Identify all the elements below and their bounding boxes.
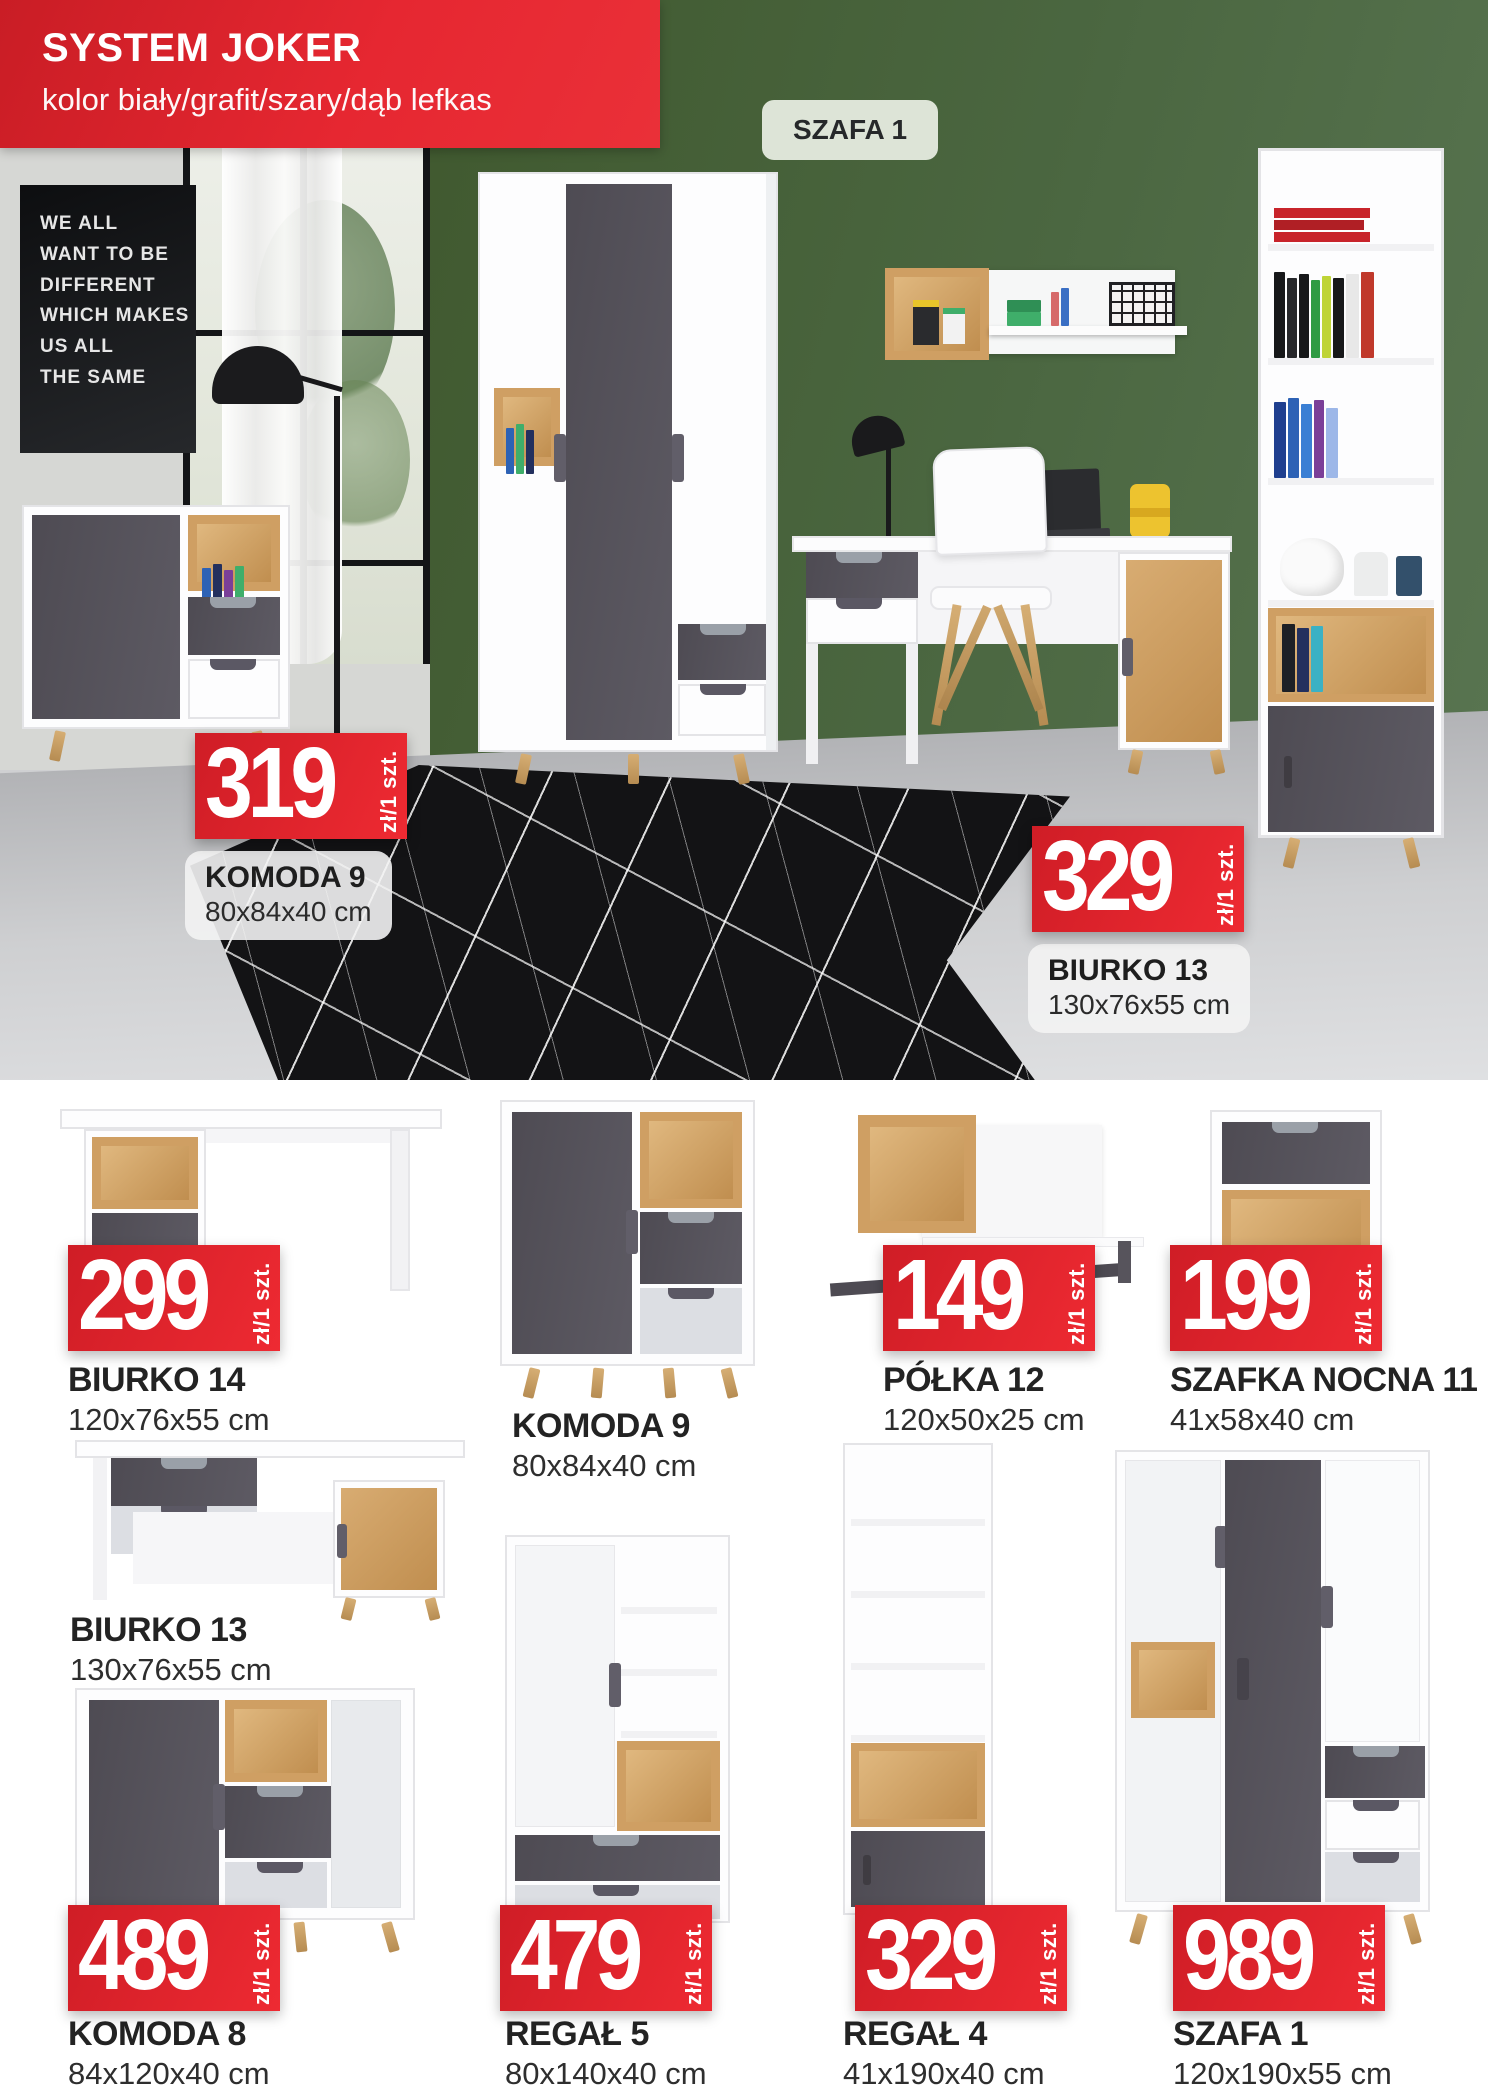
- book: [1061, 288, 1069, 326]
- series-subtitle: kolor biały/grafit/szary/dąb lefkas: [42, 82, 492, 118]
- door-handle: [337, 1524, 347, 1558]
- wood-leg: [293, 1922, 307, 1953]
- price-unit: zł/1 szt.: [681, 1911, 707, 2005]
- shelf-side-dark: [1118, 1241, 1131, 1283]
- price-badge-biurko-14: 299 zł/1 szt.: [68, 1245, 280, 1351]
- price-badge-szafa-1: 989 zł/1 szt.: [1173, 1905, 1385, 2011]
- shelf-plank: [1268, 358, 1434, 365]
- shelf-plank: [851, 1591, 985, 1598]
- product-label-komoda-9: KOMODA 9 80x84x40 cm: [512, 1408, 696, 1483]
- wood-leg: [721, 1367, 739, 1399]
- book: [1297, 628, 1309, 692]
- wood-leg: [1128, 749, 1144, 775]
- product-name: REGAŁ 5: [505, 2016, 707, 2053]
- flyer-page: WE ALL WANT TO BE DIFFERENT WHICH MAKES …: [0, 0, 1488, 2088]
- wood-leg: [591, 1368, 605, 1399]
- open-niche: [617, 1741, 720, 1831]
- room-szafa: [478, 172, 778, 772]
- desk-top: [75, 1440, 465, 1458]
- drawer-handle: [836, 552, 882, 563]
- open-niche: [851, 1743, 985, 1827]
- hero-room-photo: WE ALL WANT TO BE DIFFERENT WHICH MAKES …: [0, 0, 1488, 1080]
- cabinet-door: [331, 1700, 401, 1908]
- drawer-handle: [593, 1835, 639, 1846]
- product-label-biurko-14: BIURKO 14 120x76x55 cm: [68, 1362, 270, 1437]
- poster-line: THE SAME: [40, 363, 196, 394]
- price-unit: zł/1 szt.: [1036, 1911, 1062, 2005]
- drawer-handle: [700, 624, 746, 635]
- wood-leg: [1129, 1913, 1148, 1945]
- poster-line: WHICH MAKES: [40, 301, 196, 332]
- wall-shelf-unit: [885, 268, 1190, 364]
- product-dimensions: 130x76x55 cm: [1048, 989, 1230, 1021]
- wood-leg: [1403, 1913, 1422, 1945]
- price-unit: zł/1 szt.: [1213, 832, 1239, 926]
- price-value: 319: [205, 733, 333, 833]
- desk-back-panel: [133, 1512, 333, 1584]
- shelf-plank: [621, 1731, 717, 1738]
- product-callout-komoda-9: KOMODA 9 80x84x40 cm: [185, 851, 392, 940]
- product-dimensions: 80x140x40 cm: [505, 2057, 707, 2088]
- door-handle: [626, 1210, 638, 1254]
- shelf-plank: [851, 1735, 985, 1742]
- book: [526, 430, 534, 474]
- shelf-plank: [1268, 478, 1434, 485]
- price-badge-regal-4: 329 zł/1 szt.: [855, 1905, 1067, 2011]
- poster-line: US ALL: [40, 332, 196, 363]
- poster-line: WE ALL: [40, 209, 196, 240]
- drawer-handle: [161, 1458, 207, 1469]
- product-image-biurko-13: [75, 1440, 470, 1615]
- price-badge-komoda-8: 489 zł/1 szt.: [68, 1905, 280, 2011]
- house-decor: [913, 300, 939, 345]
- open-niche: [92, 1137, 198, 1209]
- product-name: SZAFKA NOCNA 11: [1170, 1362, 1477, 1399]
- desk-leg-panel: [906, 644, 918, 764]
- wire-basket: [1109, 282, 1175, 326]
- wardrobe-door: [566, 184, 672, 740]
- book: [1274, 402, 1286, 478]
- wall-cube: [858, 1115, 976, 1233]
- cabinet-door: [32, 515, 180, 719]
- book: [1333, 278, 1344, 358]
- shelf-plank: [1268, 244, 1434, 251]
- cabinet-door: [512, 1112, 632, 1354]
- price-value: 199: [1180, 1245, 1308, 1345]
- product-name: BIURKO 13: [1048, 954, 1230, 989]
- product-name: BIURKO 14: [68, 1362, 270, 1399]
- price-badge-komoda-9-photo: 319 zł/1 szt.: [195, 733, 407, 839]
- product-image-regal-4: [843, 1443, 1003, 1953]
- book: [1282, 624, 1295, 692]
- price-badge-szafka-nocna-11: 199 zł/1 szt.: [1170, 1245, 1382, 1351]
- price-unit: zł/1 szt.: [1354, 1911, 1380, 2005]
- lamp-shade: [212, 346, 304, 404]
- room-biurko: [792, 390, 1240, 776]
- series-banner: SYSTEM JOKER kolor biały/grafit/szary/dą…: [0, 0, 660, 148]
- open-niche: [225, 1700, 327, 1782]
- series-title: SYSTEM JOKER: [42, 26, 361, 71]
- drawer-handle: [836, 598, 882, 609]
- drawer-handle: [668, 1288, 714, 1299]
- product-dimensions: 120x190x55 cm: [1173, 2057, 1392, 2088]
- desk-side-panel: [390, 1129, 410, 1291]
- wardrobe-side: [766, 174, 776, 750]
- shelf-plank: [851, 1663, 985, 1670]
- product-image-szafa-1: [1115, 1450, 1435, 1965]
- product-dimensions: 41x58x40 cm: [1170, 1403, 1477, 1437]
- cabinet-door: [851, 1831, 985, 1907]
- product-dimensions: 80x84x40 cm: [512, 1449, 696, 1483]
- door-handle: [672, 434, 684, 482]
- price-badge-biurko-13-photo: 329 zł/1 szt.: [1032, 826, 1244, 932]
- door-handle: [863, 1855, 871, 1885]
- price-value: 489: [78, 1905, 206, 2005]
- open-niche: [640, 1112, 742, 1208]
- product-dimensions: 130x76x55 cm: [70, 1653, 272, 1687]
- price-unit: zł/1 szt.: [1064, 1251, 1090, 1345]
- drawer-handle: [593, 1885, 639, 1896]
- product-tag-szafa-1: SZAFA 1: [762, 100, 938, 160]
- door-handle: [554, 434, 566, 482]
- product-dimensions: 80x84x40 cm: [205, 896, 372, 928]
- wood-leg: [1403, 837, 1421, 869]
- poster-line: DIFFERENT: [40, 271, 196, 302]
- door-handle: [1321, 1586, 1333, 1628]
- desk-lamp-head: [846, 410, 905, 458]
- desk-leg-panel: [806, 644, 818, 764]
- book: [1314, 400, 1324, 478]
- product-label-szafa-1: SZAFA 1 120x190x55 cm: [1173, 2016, 1392, 2088]
- door-handle: [213, 1784, 225, 1830]
- house-decor: [943, 308, 965, 344]
- cabinet-door: [341, 1488, 437, 1590]
- price-unit: zł/1 szt.: [249, 1251, 275, 1345]
- figurine: [1396, 556, 1422, 596]
- drawer-handle: [1353, 1746, 1399, 1757]
- drawer-handle: [1272, 1122, 1318, 1133]
- price-value: 329: [1042, 826, 1170, 926]
- price-value: 479: [510, 1905, 638, 2005]
- price-value: 989: [1183, 1905, 1311, 2005]
- book: [1007, 300, 1041, 312]
- cabinet-door: [1126, 560, 1222, 742]
- product-name: KOMODA 8: [68, 2016, 270, 2053]
- shelf-plank: [989, 326, 1187, 335]
- room-regal: [1258, 148, 1448, 868]
- door-handle: [1284, 756, 1292, 788]
- desk-side-panel: [93, 1458, 107, 1600]
- book: [1301, 404, 1312, 478]
- door-handle: [1122, 638, 1133, 676]
- book: [1311, 626, 1323, 692]
- desk-lamp-pole: [886, 432, 891, 544]
- price-unit: zł/1 szt.: [1351, 1251, 1377, 1345]
- book: [1287, 278, 1297, 358]
- shelf-plank: [1268, 600, 1434, 607]
- desk-back-panel: [206, 1129, 390, 1143]
- book: [1326, 408, 1338, 478]
- product-dimensions: 84x120x40 cm: [68, 2057, 270, 2088]
- book: [1274, 208, 1370, 218]
- price-badge-polka-12: 149 zł/1 szt.: [883, 1245, 1095, 1351]
- book: [1361, 272, 1374, 358]
- book: [1299, 274, 1309, 358]
- book: [1311, 280, 1320, 358]
- product-image-komoda-9: [500, 1100, 755, 1400]
- price-value: 149: [893, 1245, 1021, 1345]
- book: [1346, 274, 1359, 358]
- book: [1051, 292, 1059, 326]
- wood-leg: [49, 730, 66, 762]
- price-badge-regal-5: 479 zł/1 szt.: [500, 1905, 712, 2011]
- product-dimensions: 120x76x55 cm: [68, 1403, 270, 1437]
- wood-leg: [663, 1368, 677, 1399]
- product-name: PÓŁKA 12: [883, 1362, 1085, 1399]
- product-dimensions: 41x190x40 cm: [843, 2057, 1045, 2088]
- price-unit: zł/1 szt.: [249, 1911, 275, 2005]
- wardrobe-door: [1325, 1460, 1420, 1742]
- product-image-regal-5: [505, 1535, 730, 1955]
- price-unit: zł/1 szt.: [376, 739, 402, 833]
- product-label-polka-12: PÓŁKA 12 120x50x25 cm: [883, 1362, 1085, 1437]
- book: [1322, 276, 1331, 358]
- wood-leg: [628, 754, 639, 784]
- shelf-plank: [851, 1519, 985, 1526]
- book: [506, 428, 514, 474]
- desk-top: [60, 1109, 442, 1129]
- product-label-regal-5: REGAŁ 5 80x140x40 cm: [505, 2016, 707, 2088]
- product-label-biurko-13: BIURKO 13 130x76x55 cm: [70, 1612, 272, 1687]
- book: [1007, 312, 1041, 326]
- product-name: KOMODA 9: [512, 1408, 696, 1445]
- shelf-plank: [621, 1607, 717, 1614]
- product-label-regal-4: REGAŁ 4 41x190x40 cm: [843, 2016, 1045, 2088]
- wood-leg: [381, 1921, 400, 1953]
- chair-back: [932, 446, 1048, 556]
- product-name: BIURKO 13: [70, 1612, 272, 1649]
- shelf-plank: [621, 1669, 717, 1676]
- cabinet-door: [515, 1545, 615, 1827]
- book: [1288, 398, 1299, 478]
- door-handle: [609, 1663, 621, 1707]
- wood-leg: [523, 1367, 541, 1399]
- vase: [1280, 538, 1344, 596]
- book: [1274, 220, 1364, 230]
- drawer-handle: [1353, 1852, 1399, 1863]
- book: [1274, 232, 1370, 242]
- drawer-handle: [257, 1786, 303, 1797]
- book: [516, 424, 524, 474]
- drawer-handle: [668, 1212, 714, 1223]
- open-niche: [1131, 1642, 1215, 1718]
- poster-line: WANT TO BE: [40, 240, 196, 271]
- price-value: 329: [865, 1905, 993, 2005]
- product-dimensions: 120x50x25 cm: [883, 1403, 1085, 1437]
- figurine: [1354, 552, 1388, 596]
- product-label-komoda-8: KOMODA 8 84x120x40 cm: [68, 2016, 270, 2088]
- product-name: REGAŁ 4: [843, 2016, 1045, 2053]
- product-name: KOMODA 9: [205, 861, 372, 896]
- toy-stripe: [1130, 508, 1170, 517]
- book: [1274, 272, 1285, 358]
- door-handle: [1237, 1658, 1249, 1700]
- cabinet-door: [89, 1700, 219, 1908]
- price-value: 299: [78, 1245, 206, 1345]
- wood-leg: [425, 1597, 441, 1621]
- drawer-handle: [257, 1862, 303, 1873]
- wall-poster: WE ALL WANT TO BE DIFFERENT WHICH MAKES …: [20, 185, 196, 453]
- drawer-handle: [700, 684, 746, 695]
- floor-lamp: [200, 330, 460, 790]
- product-callout-biurko-13: BIURKO 13 130x76x55 cm: [1028, 944, 1250, 1033]
- product-label-szafka-nocna-11: SZAFKA NOCNA 11 41x58x40 cm: [1170, 1362, 1477, 1437]
- cabinet-door: [1268, 706, 1434, 832]
- lamp-pole: [334, 396, 340, 768]
- chair-seat: [930, 586, 1052, 610]
- drawer-handle: [1353, 1800, 1399, 1811]
- wood-leg: [1283, 837, 1301, 869]
- wood-leg: [1210, 749, 1226, 775]
- wood-leg: [341, 1597, 357, 1621]
- product-name: SZAFA 1: [1173, 2016, 1392, 2053]
